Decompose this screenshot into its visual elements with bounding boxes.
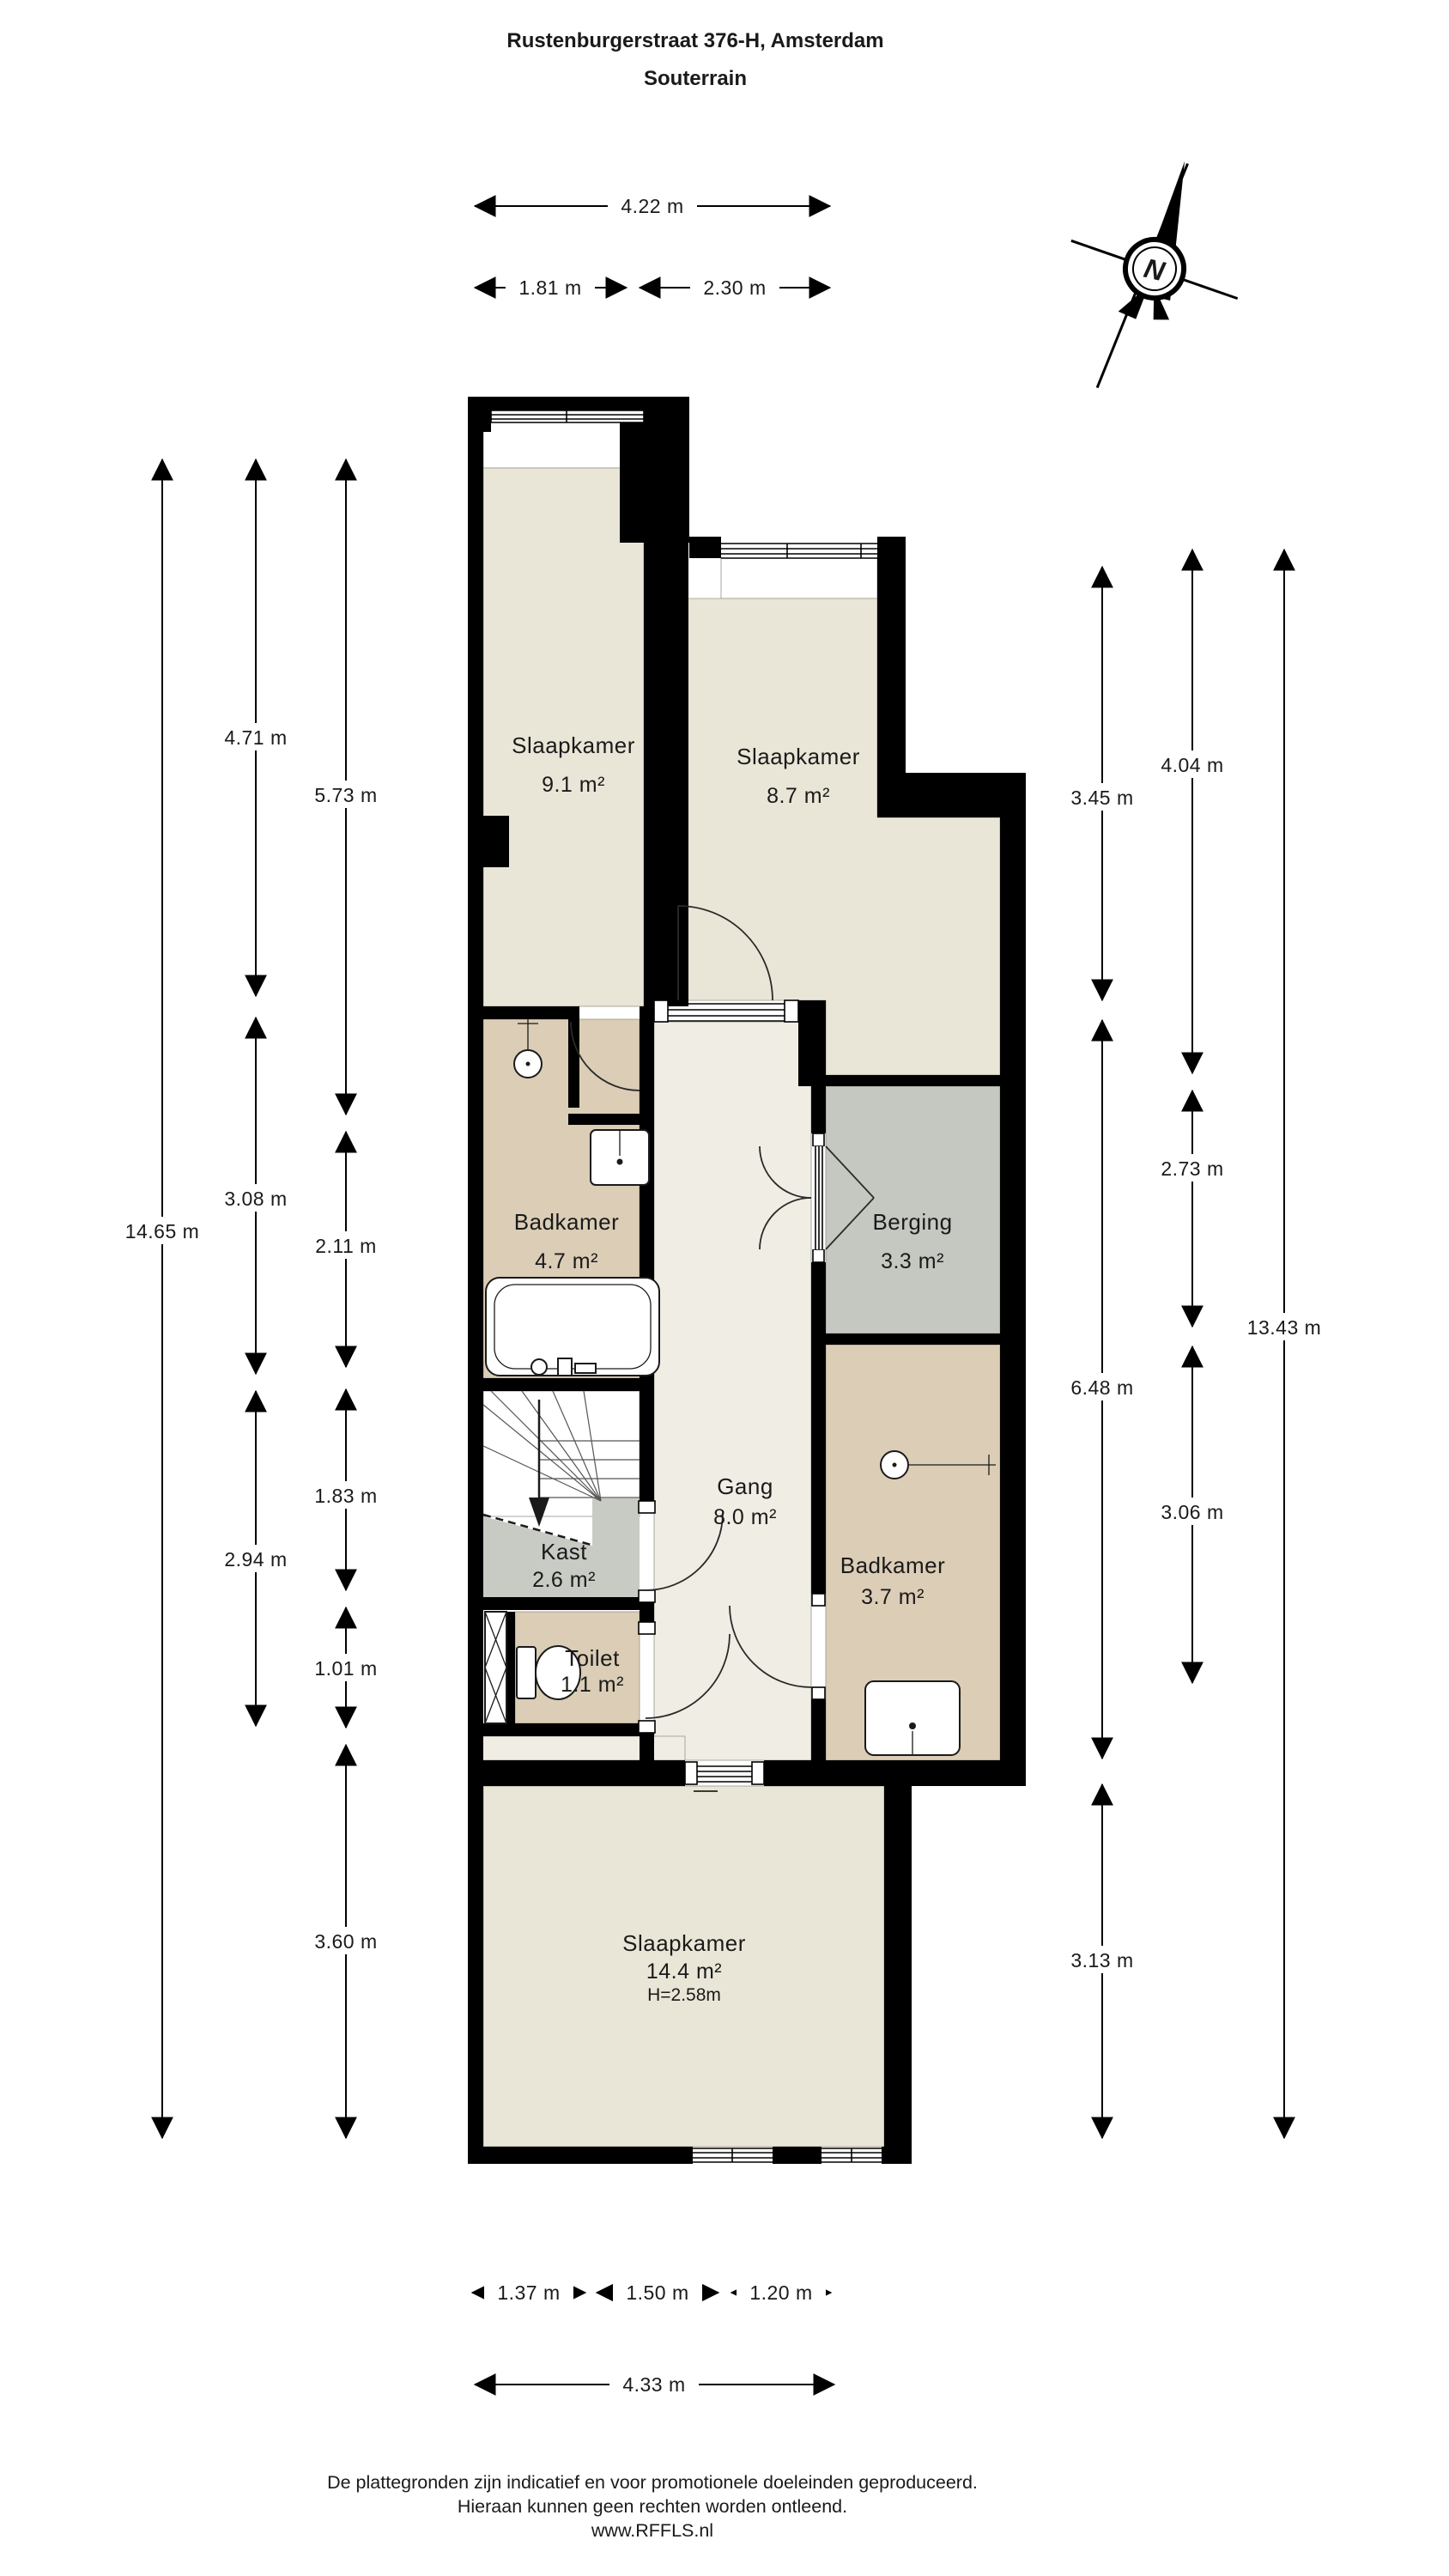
dim-right-b3: 3.06 m xyxy=(1161,1501,1223,1523)
room-floor-gang xyxy=(654,1022,811,1760)
window-icon xyxy=(693,2148,773,2162)
window-sill-top-left xyxy=(483,422,644,468)
room-label-gang: Gang xyxy=(717,1473,773,1499)
room-label-berging: Berging xyxy=(872,1209,952,1235)
dim-left-a1: 4.71 m xyxy=(224,726,287,749)
window-icon xyxy=(491,410,644,422)
dim-top-right: 2.30 m xyxy=(703,276,766,299)
room-label-badkamer-onder: Badkamer xyxy=(840,1552,946,1578)
glazed-door-band xyxy=(654,1000,798,1022)
room-area-gang: 8.0 m² xyxy=(713,1505,777,1529)
dim-left-overall: 14.65 m xyxy=(125,1220,200,1242)
title-block: Rustenburgerstraat 376-H, Amsterdam Sout… xyxy=(506,29,883,90)
dim-right-a3: 3.13 m xyxy=(1070,1949,1133,1971)
floor-subtitle: Souterrain xyxy=(644,67,747,90)
room-label-slaapkamer-links: Slaapkamer xyxy=(512,732,635,758)
bathtub-icon xyxy=(486,1278,659,1376)
room-area-berging: 3.3 m² xyxy=(881,1249,944,1273)
room-area-slaapkamer-onder: 14.4 m² xyxy=(646,1959,722,1984)
sink-icon xyxy=(865,1681,960,1755)
dim-top-left: 1.81 m xyxy=(518,276,581,299)
dim-left-b1: 5.73 m xyxy=(314,784,377,806)
room-height-slaapkamer-onder: H=2.58m xyxy=(647,1985,721,2005)
room-label-slaapkamer-rechts: Slaapkamer xyxy=(737,744,860,769)
footer-line-1: De plattegronden zijn indicatief en voor… xyxy=(327,2472,978,2493)
dim-top-total: 4.22 m xyxy=(621,195,683,217)
footer-line-2: Hieraan kunnen geen rechten worden ontle… xyxy=(458,2496,847,2517)
shaft-icon xyxy=(485,1612,506,1723)
dim-left-b2: 2.11 m xyxy=(315,1235,377,1257)
dim-right-b1: 4.04 m xyxy=(1161,754,1223,776)
dim-left-b3: 1.83 m xyxy=(314,1485,377,1507)
dim-bottom-3: 1.20 m xyxy=(749,2281,812,2304)
dim-bottom-1: 1.37 m xyxy=(497,2281,560,2304)
room-area-toilet: 1.1 m² xyxy=(561,1673,624,1697)
room-label-slaapkamer-onder: Slaapkamer xyxy=(622,1930,746,1956)
dim-left-a3: 2.94 m xyxy=(224,1548,287,1571)
room-label-kast: Kast xyxy=(541,1539,587,1564)
dim-bottom-2: 1.50 m xyxy=(626,2281,688,2304)
dim-right-overall: 13.43 m xyxy=(1247,1316,1322,1339)
window-icon xyxy=(721,544,877,558)
dim-left-a2: 3.08 m xyxy=(224,1188,287,1210)
wall-pier xyxy=(483,816,509,867)
room-label-toilet: Toilet xyxy=(565,1645,620,1671)
room-area-badkamer-onder: 3.7 m² xyxy=(861,1585,925,1609)
dim-right-b2: 2.73 m xyxy=(1161,1157,1223,1180)
dim-right-a1: 3.45 m xyxy=(1070,787,1133,809)
page-title: Rustenburgerstraat 376-H, Amsterdam xyxy=(506,29,883,52)
dim-bottom-total: 4.33 m xyxy=(622,2373,685,2396)
hall-strip-floor xyxy=(482,1736,685,1760)
sink-icon xyxy=(591,1130,649,1185)
room-area-slaapkamer-rechts: 8.7 m² xyxy=(767,784,830,808)
dim-right-a2: 6.48 m xyxy=(1070,1376,1133,1399)
window-icon xyxy=(822,2148,882,2162)
footer-disclaimer: De plattegronden zijn indicatief en voor… xyxy=(327,2472,978,2541)
floorplan-page: Rustenburgerstraat 376-H, Amsterdam Sout… xyxy=(0,0,1449,2576)
dim-left-b5: 3.60 m xyxy=(314,1930,377,1953)
room-label-badkamer-boven: Badkamer xyxy=(514,1209,620,1235)
window-sill-top-right xyxy=(721,558,877,598)
north-arrow-icon: N xyxy=(1040,140,1265,414)
room-area-kast: 2.6 m² xyxy=(532,1568,596,1592)
dim-left-b4: 1.01 m xyxy=(314,1657,377,1680)
room-area-badkamer-boven: 4.7 m² xyxy=(535,1249,598,1273)
room-area-slaapkamer-links: 9.1 m² xyxy=(542,773,605,797)
floorplan-drawing: Rustenburgerstraat 376-H, Amsterdam Sout… xyxy=(0,0,1449,2576)
footer-website: www.RFFLS.nl xyxy=(591,2520,713,2541)
